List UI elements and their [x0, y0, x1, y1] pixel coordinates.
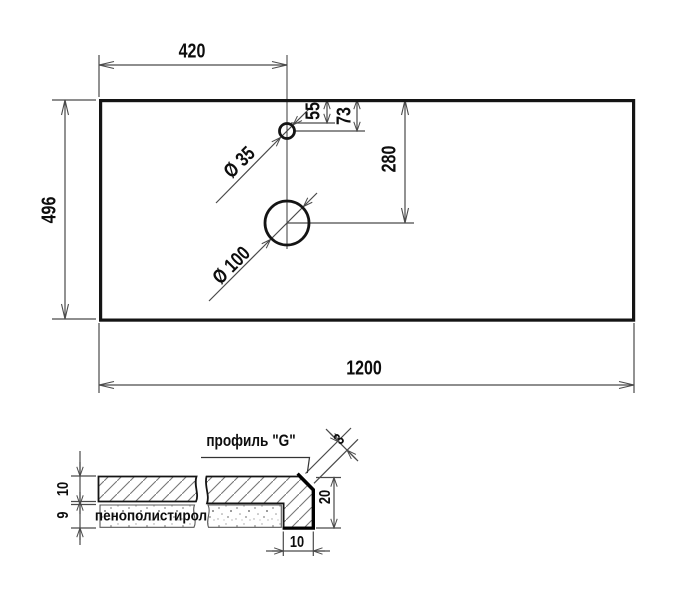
slab-left-hatched [99, 477, 198, 502]
countertop-outline [101, 101, 634, 321]
dim-top-layer-10: 10 [55, 482, 73, 496]
dim-large-hole-center-280: 280 [379, 146, 402, 173]
dim-edge-height-20: 20 [317, 490, 335, 504]
dim-width-1200: 1200 [346, 358, 382, 381]
dim-foam-layer-9: 9 [55, 511, 73, 518]
profile-g-label: профиль "G" [206, 431, 295, 451]
foam-right [208, 505, 282, 527]
dim-small-hole-center-73: 73 [334, 107, 357, 125]
top-view [52, 55, 634, 393]
dim-edge-width-10: 10 [290, 534, 304, 552]
foam-material-label: пенополистирол [95, 508, 207, 525]
dim-height-496: 496 [39, 197, 62, 224]
dim-small-hole-edge-55: 55 [303, 102, 326, 120]
technical-drawing: 420 496 1200 55 73 280 Ø 35 Ø 100 профил… [0, 0, 678, 600]
profile-leader-line [201, 458, 310, 474]
top-view-dimension-lines [52, 55, 634, 393]
dim-hole-offset-420: 420 [179, 41, 206, 64]
